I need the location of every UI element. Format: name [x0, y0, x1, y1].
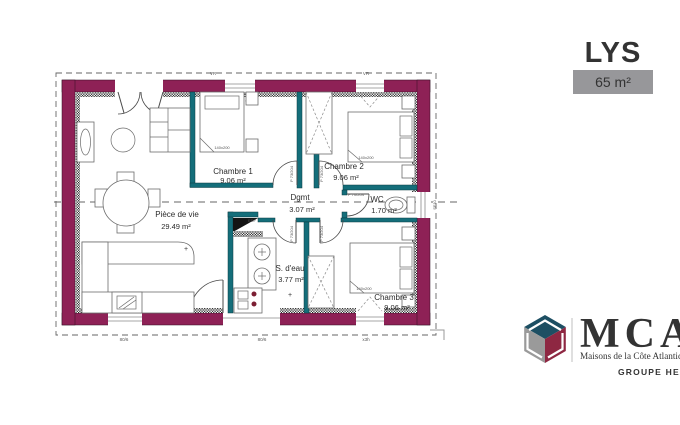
window-right-wc [416, 192, 431, 218]
door-wc [347, 194, 369, 216]
dining-table-symbol [95, 172, 160, 233]
room-label-piece-de-vie: Pièce de vie [155, 210, 199, 219]
room-label-chambre1: Chambre 1 [213, 167, 253, 176]
edf-label: EDF [248, 218, 257, 223]
washbasin-symbol [254, 268, 270, 284]
outlet-mark: + [184, 246, 188, 253]
wardrobe-symbol [308, 256, 334, 308]
room-area-piece-de-vie: 29.49 m² [161, 222, 191, 231]
door-size-label: P 73/204 [319, 165, 324, 182]
cube-logo-icon [524, 315, 566, 363]
chambre1-furniture: 140x200 [200, 92, 258, 152]
room-area-chambre3: 9.06 m² [384, 303, 410, 312]
entrance-opening [115, 79, 163, 93]
room-label-dgmt: Dgmt [290, 193, 310, 202]
nightstand-symbol [246, 139, 258, 152]
room-area-chambre2: 9.06 m² [333, 173, 359, 182]
small-round-table-symbol [111, 128, 135, 152]
wardrobe-symbol [306, 92, 332, 154]
washbasin-symbol [254, 244, 270, 260]
room-label-wc: WC [370, 195, 384, 204]
kitchen-counter-symbol [82, 242, 194, 313]
dim-label: x3h [362, 337, 370, 342]
bed-size-label: 140x200 [214, 145, 230, 150]
nightstand-symbol [402, 227, 415, 240]
window-top-2 [356, 79, 384, 93]
window-bottom-2 [356, 312, 384, 326]
entry-closet-symbol [150, 108, 190, 152]
washer-symbol [234, 288, 262, 313]
room-label-salle-eau: S. d'eau [275, 264, 304, 273]
room-label-chambre3: Chambre 3 [374, 293, 414, 302]
shutter-label: VR [363, 71, 370, 76]
nightstand-symbol [402, 165, 415, 178]
console-symbol [77, 122, 94, 162]
room-area-chambre1: 9.06 m² [220, 176, 246, 185]
nightstand-symbol [246, 92, 258, 105]
dim-label: 80/6 [120, 337, 129, 342]
wall-left [62, 80, 75, 325]
room-area-dgmt: 3.07 m² [289, 205, 315, 214]
window-size-label: SF10 [432, 199, 437, 209]
window-top-1 [225, 79, 255, 93]
model-title: LYS [585, 37, 642, 69]
dim-label: 80/6 [258, 337, 267, 342]
door-size-label: P 73/204 [289, 165, 294, 182]
room-area-wc: 1.70 m² [371, 206, 397, 215]
terrace-door-opening [223, 312, 280, 326]
bed-symbol [200, 92, 244, 152]
brand-logo: MCA Maisons de la Côte Atlantique GROUPE… [524, 311, 680, 377]
bed-size-label: 140x200 [356, 286, 372, 291]
door-size-label: P 73/204 [319, 225, 324, 242]
floor-plan-svg: EDF [0, 0, 680, 425]
door-size-label: P 73/204 [289, 225, 294, 242]
header: LYS 65 m² [573, 37, 653, 94]
bed-size-label: 140x200 [358, 155, 374, 160]
brand-group: GROUPE HEXAOM [618, 367, 680, 377]
room-area-salle-eau: 3.77 m² [278, 275, 304, 284]
window-bottom-1 [108, 312, 142, 326]
outlet-mark: + [288, 292, 292, 299]
nightstand-symbol [402, 96, 415, 109]
room-label-chambre2: Chambre 2 [324, 162, 364, 171]
shutter-label: VR [210, 71, 217, 76]
brand-tagline: Maisons de la Côte Atlantique [580, 351, 680, 361]
wc-door-size-label: P 70/204 [348, 192, 365, 197]
floor-plan-page: EDF [0, 0, 680, 425]
kitchen-sink-symbol [112, 292, 142, 313]
surface-badge-text: 65 m² [595, 74, 631, 90]
